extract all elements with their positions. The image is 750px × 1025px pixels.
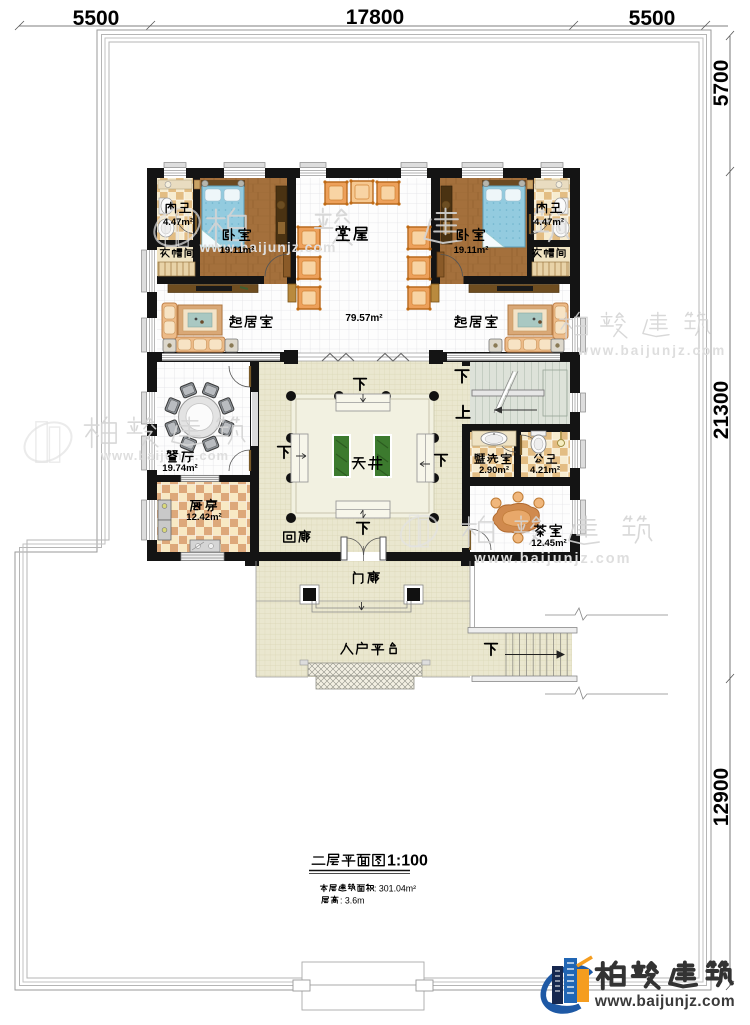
svg-text:19.74m²: 19.74m² <box>162 463 197 474</box>
svg-text:www.baijunjz.com: www.baijunjz.com <box>577 343 727 358</box>
svg-text:21300: 21300 <box>710 381 733 439</box>
svg-text:2.90m²: 2.90m² <box>479 465 509 476</box>
svg-text:4.21m²: 4.21m² <box>530 465 560 476</box>
svg-text:5500: 5500 <box>629 7 676 30</box>
svg-text:4.47m²: 4.47m² <box>163 217 193 228</box>
svg-text:: 3.6m: : 3.6m <box>340 896 364 906</box>
svg-text:12.45m²: 12.45m² <box>531 538 566 549</box>
svg-text:19.11m²: 19.11m² <box>454 245 489 256</box>
svg-text:www.baijunjz.com: www.baijunjz.com <box>100 448 229 463</box>
svg-text:19.11m²: 19.11m² <box>220 245 255 256</box>
svg-text:5700: 5700 <box>710 60 733 107</box>
svg-text:1:100: 1:100 <box>387 853 428 870</box>
svg-text:5500: 5500 <box>73 7 120 30</box>
svg-text:79.57m²: 79.57m² <box>345 313 383 324</box>
svg-text:17800: 17800 <box>346 6 404 29</box>
svg-text:12.42m²: 12.42m² <box>186 512 221 523</box>
svg-text:: 301.04m²: : 301.04m² <box>374 884 416 894</box>
svg-text:www.baijunjz.com: www.baijunjz.com <box>473 551 631 567</box>
svg-text:12900: 12900 <box>710 768 733 826</box>
svg-text:4.47m²: 4.47m² <box>534 217 564 228</box>
svg-text:www.baijunjz.com: www.baijunjz.com <box>594 993 735 1010</box>
